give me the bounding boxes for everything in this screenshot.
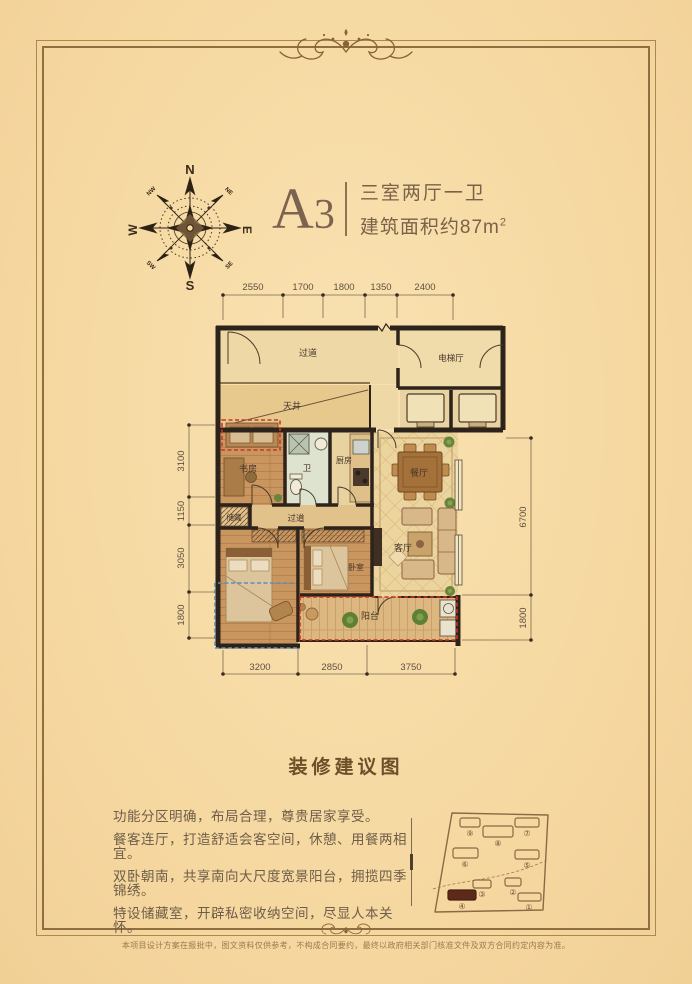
keyplan-building-9: ⑨ bbox=[466, 829, 473, 838]
footer-disclaimer: 本项目设计方案在报批中，图文资料仅供参考，不构成合同要约，最终以政府相关部门核准… bbox=[0, 940, 692, 951]
floor-plan: 过道 电梯厅 天井 书房 卫 厨房 餐厅 储藏 过道 卧室 客厅 阳台 bbox=[158, 276, 560, 688]
compass-w-label: W bbox=[126, 224, 140, 236]
compass-rose: N S E W NW NE SW SE bbox=[126, 160, 254, 292]
floorplan-brochure-page: N S E W NW NE SW SE A3 三室两厅一卫 建筑面积约87m2 bbox=[0, 0, 692, 984]
dim-top-0: 2550 bbox=[242, 282, 263, 293]
dim-right-1: 1800 bbox=[518, 607, 529, 628]
compass-e-label: E bbox=[240, 226, 254, 234]
label-lightwell: 天井 bbox=[283, 400, 301, 411]
unit-area-sup: 2 bbox=[500, 217, 507, 229]
label-elevator-hall: 电梯厅 bbox=[438, 353, 464, 363]
compass-n-label: N bbox=[185, 162, 194, 177]
dim-bottom-0: 3200 bbox=[249, 662, 270, 673]
keyplan-building-8: ⑧ bbox=[494, 839, 501, 848]
label-dining: 餐厅 bbox=[410, 467, 428, 478]
dim-left-2: 3050 bbox=[176, 547, 187, 568]
keyplan-building-7: ⑦ bbox=[523, 829, 530, 838]
label-balcony: 阳台 bbox=[361, 610, 379, 621]
keyplan-building-1: ① bbox=[525, 903, 532, 912]
label-hallway: 过道 bbox=[287, 513, 305, 523]
compass-se-label: SE bbox=[225, 261, 235, 271]
label-storage: 储藏 bbox=[227, 512, 242, 522]
dim-bottom-1: 2850 bbox=[321, 662, 342, 673]
label-kitchen: 厨房 bbox=[336, 455, 352, 465]
unit-title-block: A3 三室两厅一卫 建筑面积约87m2 bbox=[272, 178, 507, 239]
dim-top-4: 2400 bbox=[414, 282, 435, 293]
feature-keyplan-divider bbox=[411, 818, 412, 906]
dim-left-0: 3100 bbox=[176, 450, 187, 471]
title-divider bbox=[345, 182, 347, 236]
site-key-plan: ⑨ ⑧ ⑦ ⑥ ⑤ ③ ② ④ ① bbox=[425, 793, 590, 948]
unit-specs: 三室两厅一卫 建筑面积约87m2 bbox=[360, 178, 507, 239]
unit-area-text: 建筑面积约87m bbox=[360, 217, 500, 238]
dim-top-2: 1800 bbox=[333, 282, 354, 293]
keyplan-building-4: ④ bbox=[458, 902, 465, 911]
compass-sw-label: SW bbox=[145, 260, 156, 271]
feature-line: 双卧朝南，共享南向大尺度宽景阳台，拥揽四季锦绣。 bbox=[113, 870, 411, 898]
label-living: 客厅 bbox=[394, 542, 412, 553]
dim-top-3: 1350 bbox=[370, 282, 391, 293]
dim-top-1: 1700 bbox=[292, 282, 313, 293]
unit-room-spec: 三室两厅一卫 bbox=[360, 178, 507, 205]
divider-thumb bbox=[410, 854, 413, 870]
feature-line: 特设储藏室，开辟私密收纳空间，尽显人本关怀。 bbox=[113, 907, 411, 935]
dim-left-1: 1150 bbox=[176, 501, 187, 521]
label-bath: 卫 bbox=[303, 463, 312, 473]
keyplan-building-3: ③ bbox=[478, 890, 485, 899]
section-title: 装修建议图 bbox=[0, 752, 692, 779]
label-bedroom: 卧室 bbox=[348, 562, 364, 572]
unit-letter: A bbox=[272, 176, 314, 241]
dim-left-3: 1800 bbox=[176, 604, 187, 625]
unit-number: 3 bbox=[314, 192, 335, 238]
label-study: 书房 bbox=[239, 463, 257, 474]
keyplan-building-2: ② bbox=[509, 888, 516, 897]
top-flourish-ornament bbox=[276, 28, 416, 70]
dim-right-0: 6700 bbox=[518, 506, 529, 527]
dim-bottom-2: 3750 bbox=[400, 662, 421, 673]
feature-text-block: 功能分区明确，布局合理，尊贵居家享受。 餐客连厅，打造舒适会客空间，休憩、用餐两… bbox=[113, 810, 411, 944]
compass-nw-label: NW bbox=[146, 186, 158, 198]
feature-line: 餐客连厅，打造舒适会客空间，休憩、用餐两相宜。 bbox=[113, 833, 411, 861]
keyplan-building-5: ⑤ bbox=[523, 861, 530, 870]
keyplan-building-6: ⑥ bbox=[461, 860, 468, 869]
label-corridor: 过道 bbox=[299, 347, 317, 358]
compass-ne-label: NE bbox=[223, 187, 233, 197]
unit-area-spec: 建筑面积约87m2 bbox=[360, 212, 507, 239]
unit-name: A3 bbox=[272, 180, 335, 238]
feature-line: 功能分区明确，布局合理，尊贵居家享受。 bbox=[113, 810, 411, 824]
